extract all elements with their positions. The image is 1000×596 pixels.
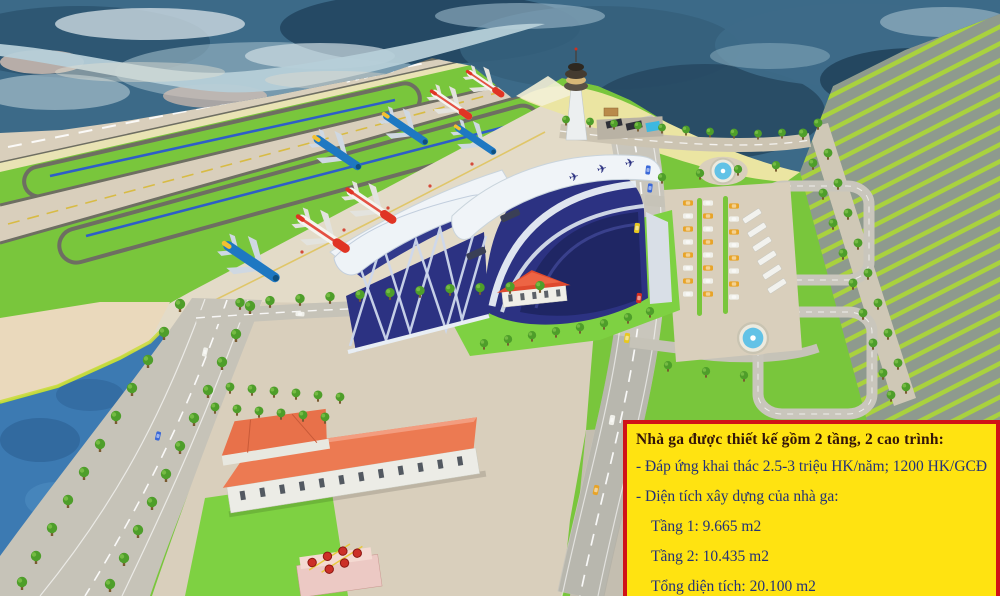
terminal-curbside-canopy [646, 212, 672, 304]
fountain-roundabout-south [723, 321, 783, 356]
info-box-line: Tổng diện tích: 20.100 m2 [636, 578, 988, 596]
parking-entrance-road [645, 200, 666, 202]
parking-median [723, 196, 728, 314]
info-box-line: - Diện tích xây dựng của nhà ga: [636, 488, 988, 506]
airport-masterplan-rendering: ✈ ✈ ✈ [0, 0, 1000, 596]
info-box-line: - Đáp ứng khai thác 2.5-3 triệu HK/năm; … [636, 458, 988, 476]
parking-median [697, 198, 702, 316]
info-box-line: Tầng 2: 10.435 m2 [636, 548, 988, 566]
info-box-line: Tầng 1: 9.665 m2 [636, 518, 988, 536]
parking-exit-road [630, 342, 678, 348]
info-box-title: Nhà ga được thiết kế gồm 2 tầng, 2 cao t… [636, 431, 988, 449]
container [604, 108, 618, 116]
info-box: Nhà ga được thiết kế gồm 2 tầng, 2 cao t… [623, 420, 1000, 596]
